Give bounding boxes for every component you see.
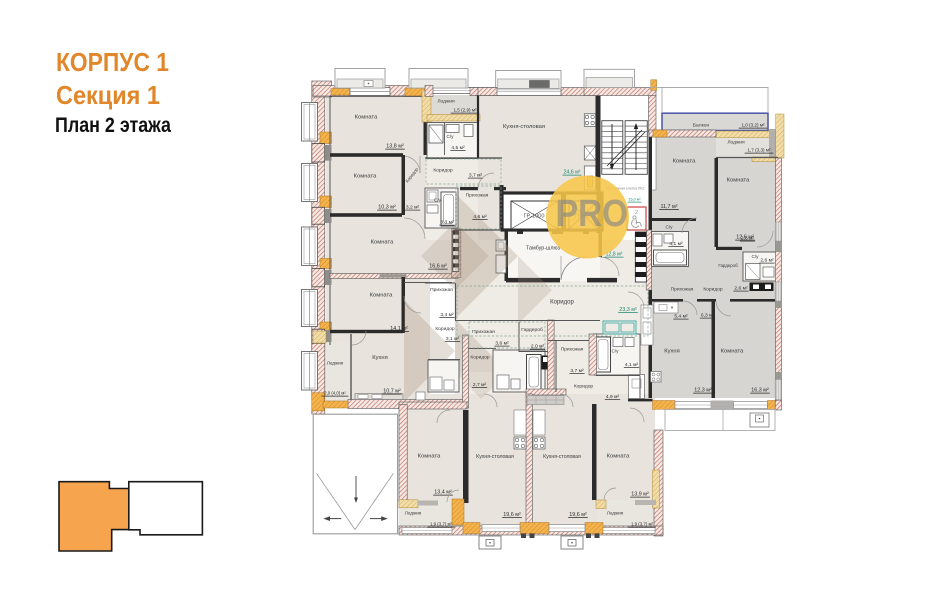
svg-text:Лоджия: Лоджия — [405, 511, 422, 516]
svg-text:2,7 м²: 2,7 м² — [473, 382, 487, 388]
svg-text:С/у: С/у — [434, 198, 442, 203]
svg-text:14,1 м²: 14,1 м² — [390, 326, 408, 332]
svg-text:3,6 м²: 3,6 м² — [495, 341, 509, 347]
svg-text:Коридор: Коридор — [435, 326, 455, 332]
svg-text:Прихожая: Прихожая — [430, 287, 453, 293]
svg-text:Комната: Комната — [727, 178, 750, 184]
svg-text:Секция 1: Секция 1 — [56, 80, 160, 110]
svg-text:16,3 м²: 16,3 м² — [751, 388, 769, 394]
svg-text:4,1 м²: 4,1 м² — [625, 362, 639, 368]
svg-text:3,3 м²: 3,3 м² — [440, 220, 454, 226]
svg-text:Коридор: Коридор — [470, 355, 490, 361]
svg-text:Кухня-столовая: Кухня-столовая — [543, 454, 581, 460]
svg-text:Гардероб: Гардероб — [521, 327, 543, 333]
svg-text:1,5 (2,9) м²: 1,5 (2,9) м² — [453, 108, 477, 113]
svg-text:План 2 этажа: План 2 этажа — [55, 113, 172, 137]
svg-text:3,2 м²: 3,2 м² — [406, 205, 420, 211]
svg-text:Комната: Комната — [418, 454, 441, 460]
svg-text:Коридор: Коридор — [550, 300, 574, 306]
svg-text:2,6 м²: 2,6 м² — [741, 236, 755, 242]
svg-text:3,7 м²: 3,7 м² — [570, 368, 584, 374]
svg-text:23,3 м²: 23,3 м² — [619, 307, 637, 313]
svg-text:4,5 м²: 4,5 м² — [451, 145, 465, 151]
svg-text:Прихожая: Прихожая — [671, 287, 694, 293]
svg-text:Комната: Комната — [607, 454, 630, 460]
svg-text:Коридор: Коридор — [433, 168, 453, 174]
svg-text:Балкон: Балкон — [693, 123, 710, 129]
svg-text:16,6 м²: 16,6 м² — [429, 264, 447, 270]
svg-text:2,6 м²: 2,6 м² — [760, 258, 774, 264]
svg-text:С/у: С/у — [751, 254, 759, 259]
svg-text:2,0 (4,0) м²: 2,0 (4,0) м² — [324, 391, 346, 396]
svg-text:19,6 м²: 19,6 м² — [569, 512, 587, 518]
svg-text:Комната: Комната — [355, 115, 378, 121]
svg-text:Прихожая: Прихожая — [466, 193, 489, 199]
svg-text:Комната: Комната — [371, 240, 394, 246]
svg-text:2,0 м²: 2,0 м² — [531, 344, 545, 350]
svg-text:Комната: Комната — [370, 293, 393, 299]
svg-text:Лоджия: Лоджия — [327, 361, 344, 366]
svg-text:Кухня-столовая: Кухня-столовая — [503, 124, 545, 130]
svg-text:24,6 м²: 24,6 м² — [564, 170, 581, 176]
svg-text:1,7 (3,3) м²: 1,7 (3,3) м² — [747, 148, 771, 153]
svg-text:10,7 м²: 10,7 м² — [383, 389, 401, 395]
svg-text:1,0 (3,2) м²: 1,0 (3,2) м² — [741, 123, 765, 128]
svg-text:Кухня: Кухня — [372, 355, 388, 361]
svg-text:Коридор: Коридор — [703, 287, 723, 293]
svg-text:Кухня: Кухня — [664, 349, 680, 355]
svg-text:Тамбур-шлюз: Тамбур-шлюз — [526, 246, 561, 252]
svg-text:13,8 м²: 13,8 м² — [386, 144, 404, 150]
svg-text:Комната: Комната — [354, 174, 377, 180]
svg-text:12,3 м²: 12,3 м² — [694, 388, 712, 394]
svg-text:3,1 м²: 3,1 м² — [446, 336, 460, 342]
svg-text:КОРПУС 1: КОРПУС 1 — [56, 47, 169, 77]
svg-text:С/у: С/у — [665, 225, 673, 230]
svg-text:Лоджия: Лоджия — [607, 511, 624, 516]
svg-text:13,9 м²: 13,9 м² — [631, 492, 649, 498]
svg-text:3,7 м²: 3,7 м² — [469, 173, 483, 179]
svg-text:19,6 м²: 19,6 м² — [503, 512, 521, 518]
svg-text:ГР-1000: ГР-1000 — [523, 214, 544, 220]
svg-text:Гардероб: Гардероб — [718, 263, 738, 268]
svg-text:2: 2 — [635, 210, 638, 216]
svg-text:Лоджия: Лоджия — [437, 99, 455, 105]
svg-text:2,6 м²: 2,6 м² — [734, 286, 748, 292]
svg-text:4,9 м²: 4,9 м² — [606, 394, 620, 400]
svg-text:PRO: PRO — [556, 193, 628, 235]
svg-text:Комната: Комната — [721, 349, 744, 355]
svg-text:С/у: С/у — [611, 349, 619, 354]
svg-text:3,4 м²: 3,4 м² — [440, 312, 454, 318]
svg-text:С/у: С/у — [446, 134, 454, 139]
svg-text:Комната: Комната — [673, 159, 696, 165]
svg-text:Прихожая: Прихожая — [561, 347, 584, 353]
svg-text:1,9 (3,7) м²: 1,9 (3,7) м² — [430, 522, 453, 527]
svg-text:Кухня-столовая: Кухня-столовая — [476, 454, 514, 460]
svg-text:1,9 (3,7) м²: 1,9 (3,7) м² — [631, 522, 654, 527]
svg-text:5,4 м²: 5,4 м² — [674, 314, 688, 320]
svg-text:4,6 м²: 4,6 м² — [473, 214, 487, 220]
svg-text:Коридор: Коридор — [574, 384, 594, 390]
svg-text:10,3 м²: 10,3 м² — [378, 205, 396, 211]
svg-text:16,0 м²: 16,0 м² — [628, 198, 641, 202]
svg-text:Лоджия: Лоджия — [727, 140, 745, 146]
svg-text:Прихожая: Прихожая — [472, 329, 495, 335]
svg-text:4,1 м²: 4,1 м² — [669, 241, 683, 247]
svg-text:11,7 м²: 11,7 м² — [660, 204, 677, 210]
